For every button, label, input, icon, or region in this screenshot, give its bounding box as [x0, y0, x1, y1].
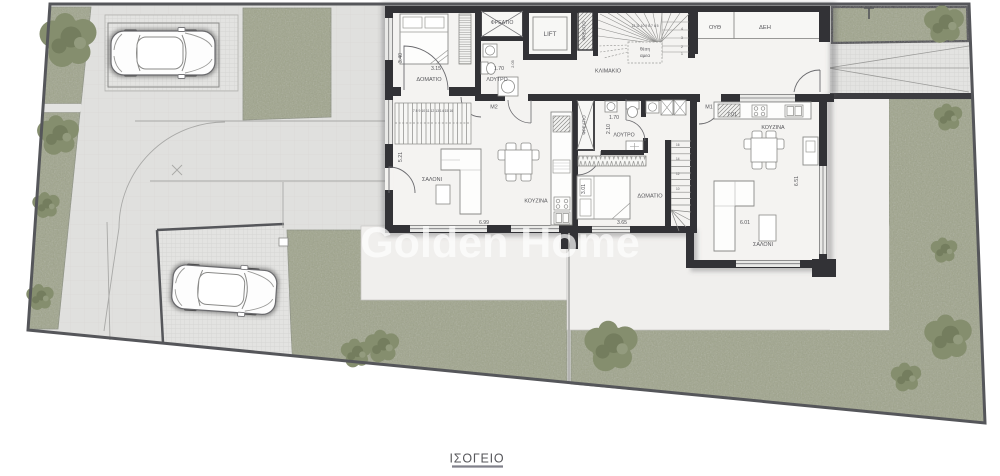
svg-text:3.40: 3.40: [398, 53, 404, 63]
svg-text:12 11 10 9 8 7 6 5: 12 11 10 9 8 7 6 5: [631, 24, 658, 28]
svg-text:ΣΑΛΟΝΙ: ΣΑΛΟΝΙ: [422, 177, 442, 183]
svg-text:3.01: 3.01: [581, 184, 587, 194]
svg-text:ΟΥΘ: ΟΥΘ: [709, 25, 722, 31]
svg-text:ΔΕΗ: ΔΕΗ: [759, 25, 771, 31]
svg-text:4: 4: [681, 27, 683, 31]
svg-text:1.70: 1.70: [609, 115, 619, 121]
svg-text:θέση: θέση: [640, 46, 650, 52]
svg-text:7.01: 7.01: [727, 112, 737, 118]
svg-text:3: 3: [681, 36, 683, 40]
svg-text:ΚΛΙΜΑΚΙΟ: ΚΛΙΜΑΚΙΟ: [595, 69, 621, 75]
svg-text:16: 16: [676, 143, 680, 147]
svg-text:ΦΡΕΑΤΙΟ: ΦΡΕΑΤΙΟ: [582, 115, 587, 135]
svg-text:2.05: 2.05: [511, 60, 515, 67]
svg-text:αμεα: αμεα: [640, 53, 650, 58]
svg-text:ΛΟΥΤΡΟ: ΛΟΥΤΡΟ: [486, 77, 507, 83]
svg-text:7 8 9 10 11 12 13 14 15 16: 7 8 9 10 11 12 13 14 15 16: [413, 109, 453, 113]
svg-text:1: 1: [681, 52, 683, 56]
svg-text:M1: M1: [705, 105, 713, 111]
svg-text:6.01: 6.01: [740, 220, 750, 226]
svg-text:ΔΩΜΑΤΙΟ: ΔΩΜΑΤΙΟ: [637, 194, 663, 200]
svg-text:LIFT: LIFT: [544, 31, 557, 38]
svg-text:6.51: 6.51: [794, 176, 800, 186]
svg-text:ΦΡΕΑΤΙΟ: ΦΡΕΑΤΙΟ: [582, 21, 587, 41]
svg-text:ΣΑΛΟΝΙ: ΣΑΛΟΝΙ: [753, 242, 773, 248]
svg-text:14: 14: [676, 157, 680, 161]
svg-text:3.15: 3.15: [431, 66, 441, 72]
svg-text:M2: M2: [490, 105, 498, 111]
svg-text:ΔΟΜΑΤΙΟ: ΔΟΜΑΤΙΟ: [416, 77, 442, 83]
svg-text:ΦΡΕΑΤΙΟ: ΦΡΕΑΤΙΟ: [491, 20, 514, 26]
svg-text:ΙΣΟΓΕΙΟ: ΙΣΟΓΕΙΟ: [450, 452, 505, 466]
svg-text:Golden Home: Golden Home: [360, 219, 640, 267]
svg-text:2: 2: [681, 45, 683, 49]
svg-text:ΚΟΥΖΙΝΑ: ΚΟΥΖΙΝΑ: [761, 125, 785, 131]
svg-text:2.10: 2.10: [606, 124, 612, 134]
svg-text:ΛΟΥΤΡΟ: ΛΟΥΤΡΟ: [613, 133, 634, 139]
svg-text:5.21: 5.21: [398, 152, 404, 162]
svg-text:12: 12: [676, 172, 680, 176]
svg-text:10: 10: [676, 187, 680, 191]
svg-text:1.70: 1.70: [494, 66, 504, 72]
svg-text:ΚΟΥΖΙΝΑ: ΚΟΥΖΙΝΑ: [524, 199, 548, 205]
